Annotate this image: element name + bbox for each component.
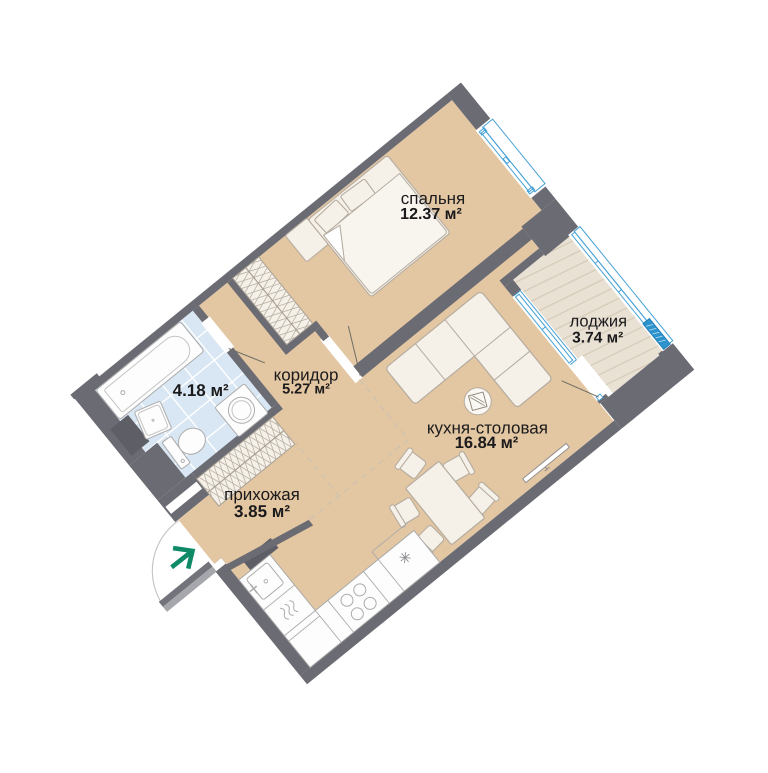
svg-text:16.84 м²: 16.84 м² [455, 434, 519, 452]
svg-text:3.74 м²: 3.74 м² [572, 329, 623, 346]
svg-text:12.37 м²: 12.37 м² [400, 206, 462, 223]
svg-text:4.18 м²: 4.18 м² [173, 381, 229, 400]
svg-text:5.27 м²: 5.27 м² [282, 381, 330, 397]
svg-text:лоджия: лоджия [570, 313, 627, 331]
svg-text:3.85 м²: 3.85 м² [234, 502, 290, 521]
